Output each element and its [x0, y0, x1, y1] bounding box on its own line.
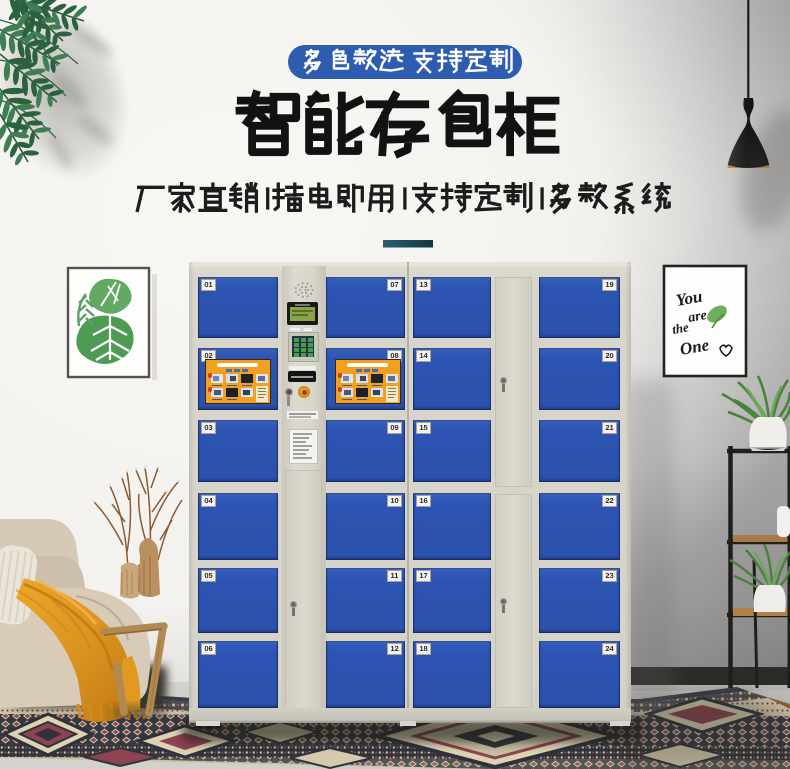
svg-text:You: You [674, 287, 703, 310]
svg-text:are: are [687, 308, 708, 326]
svg-text:the: the [671, 319, 690, 337]
svg-text:One: One [678, 335, 711, 359]
